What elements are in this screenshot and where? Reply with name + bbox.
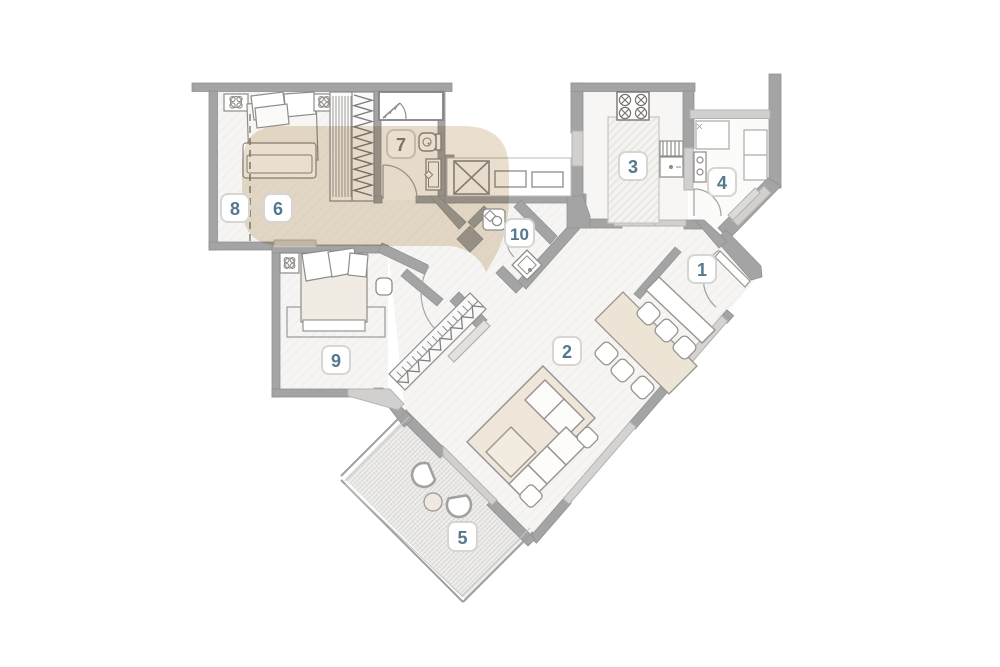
svg-text:9: 9 [331, 351, 341, 371]
svg-text:8: 8 [230, 199, 240, 219]
svg-text:2: 2 [562, 342, 572, 362]
svg-text:6: 6 [273, 199, 283, 219]
svg-text:5: 5 [457, 528, 467, 548]
svg-text:3: 3 [628, 157, 638, 177]
svg-text:1: 1 [697, 260, 707, 280]
svg-text:4: 4 [717, 173, 727, 193]
svg-text:10: 10 [510, 225, 529, 244]
